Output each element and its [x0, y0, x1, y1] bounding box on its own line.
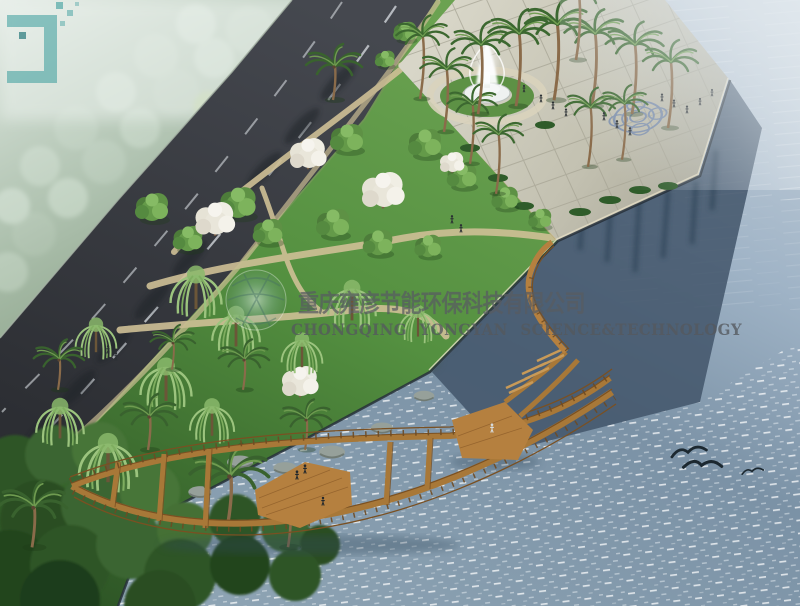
rendering: 重庆雍彦节能环保科技有限公司 CHONGQING YONGYAN SCIENCE…: [0, 0, 800, 606]
water-haze: [560, 0, 800, 190]
scene-svg: [0, 0, 800, 606]
glass-sphere-sculpture: [226, 270, 286, 330]
